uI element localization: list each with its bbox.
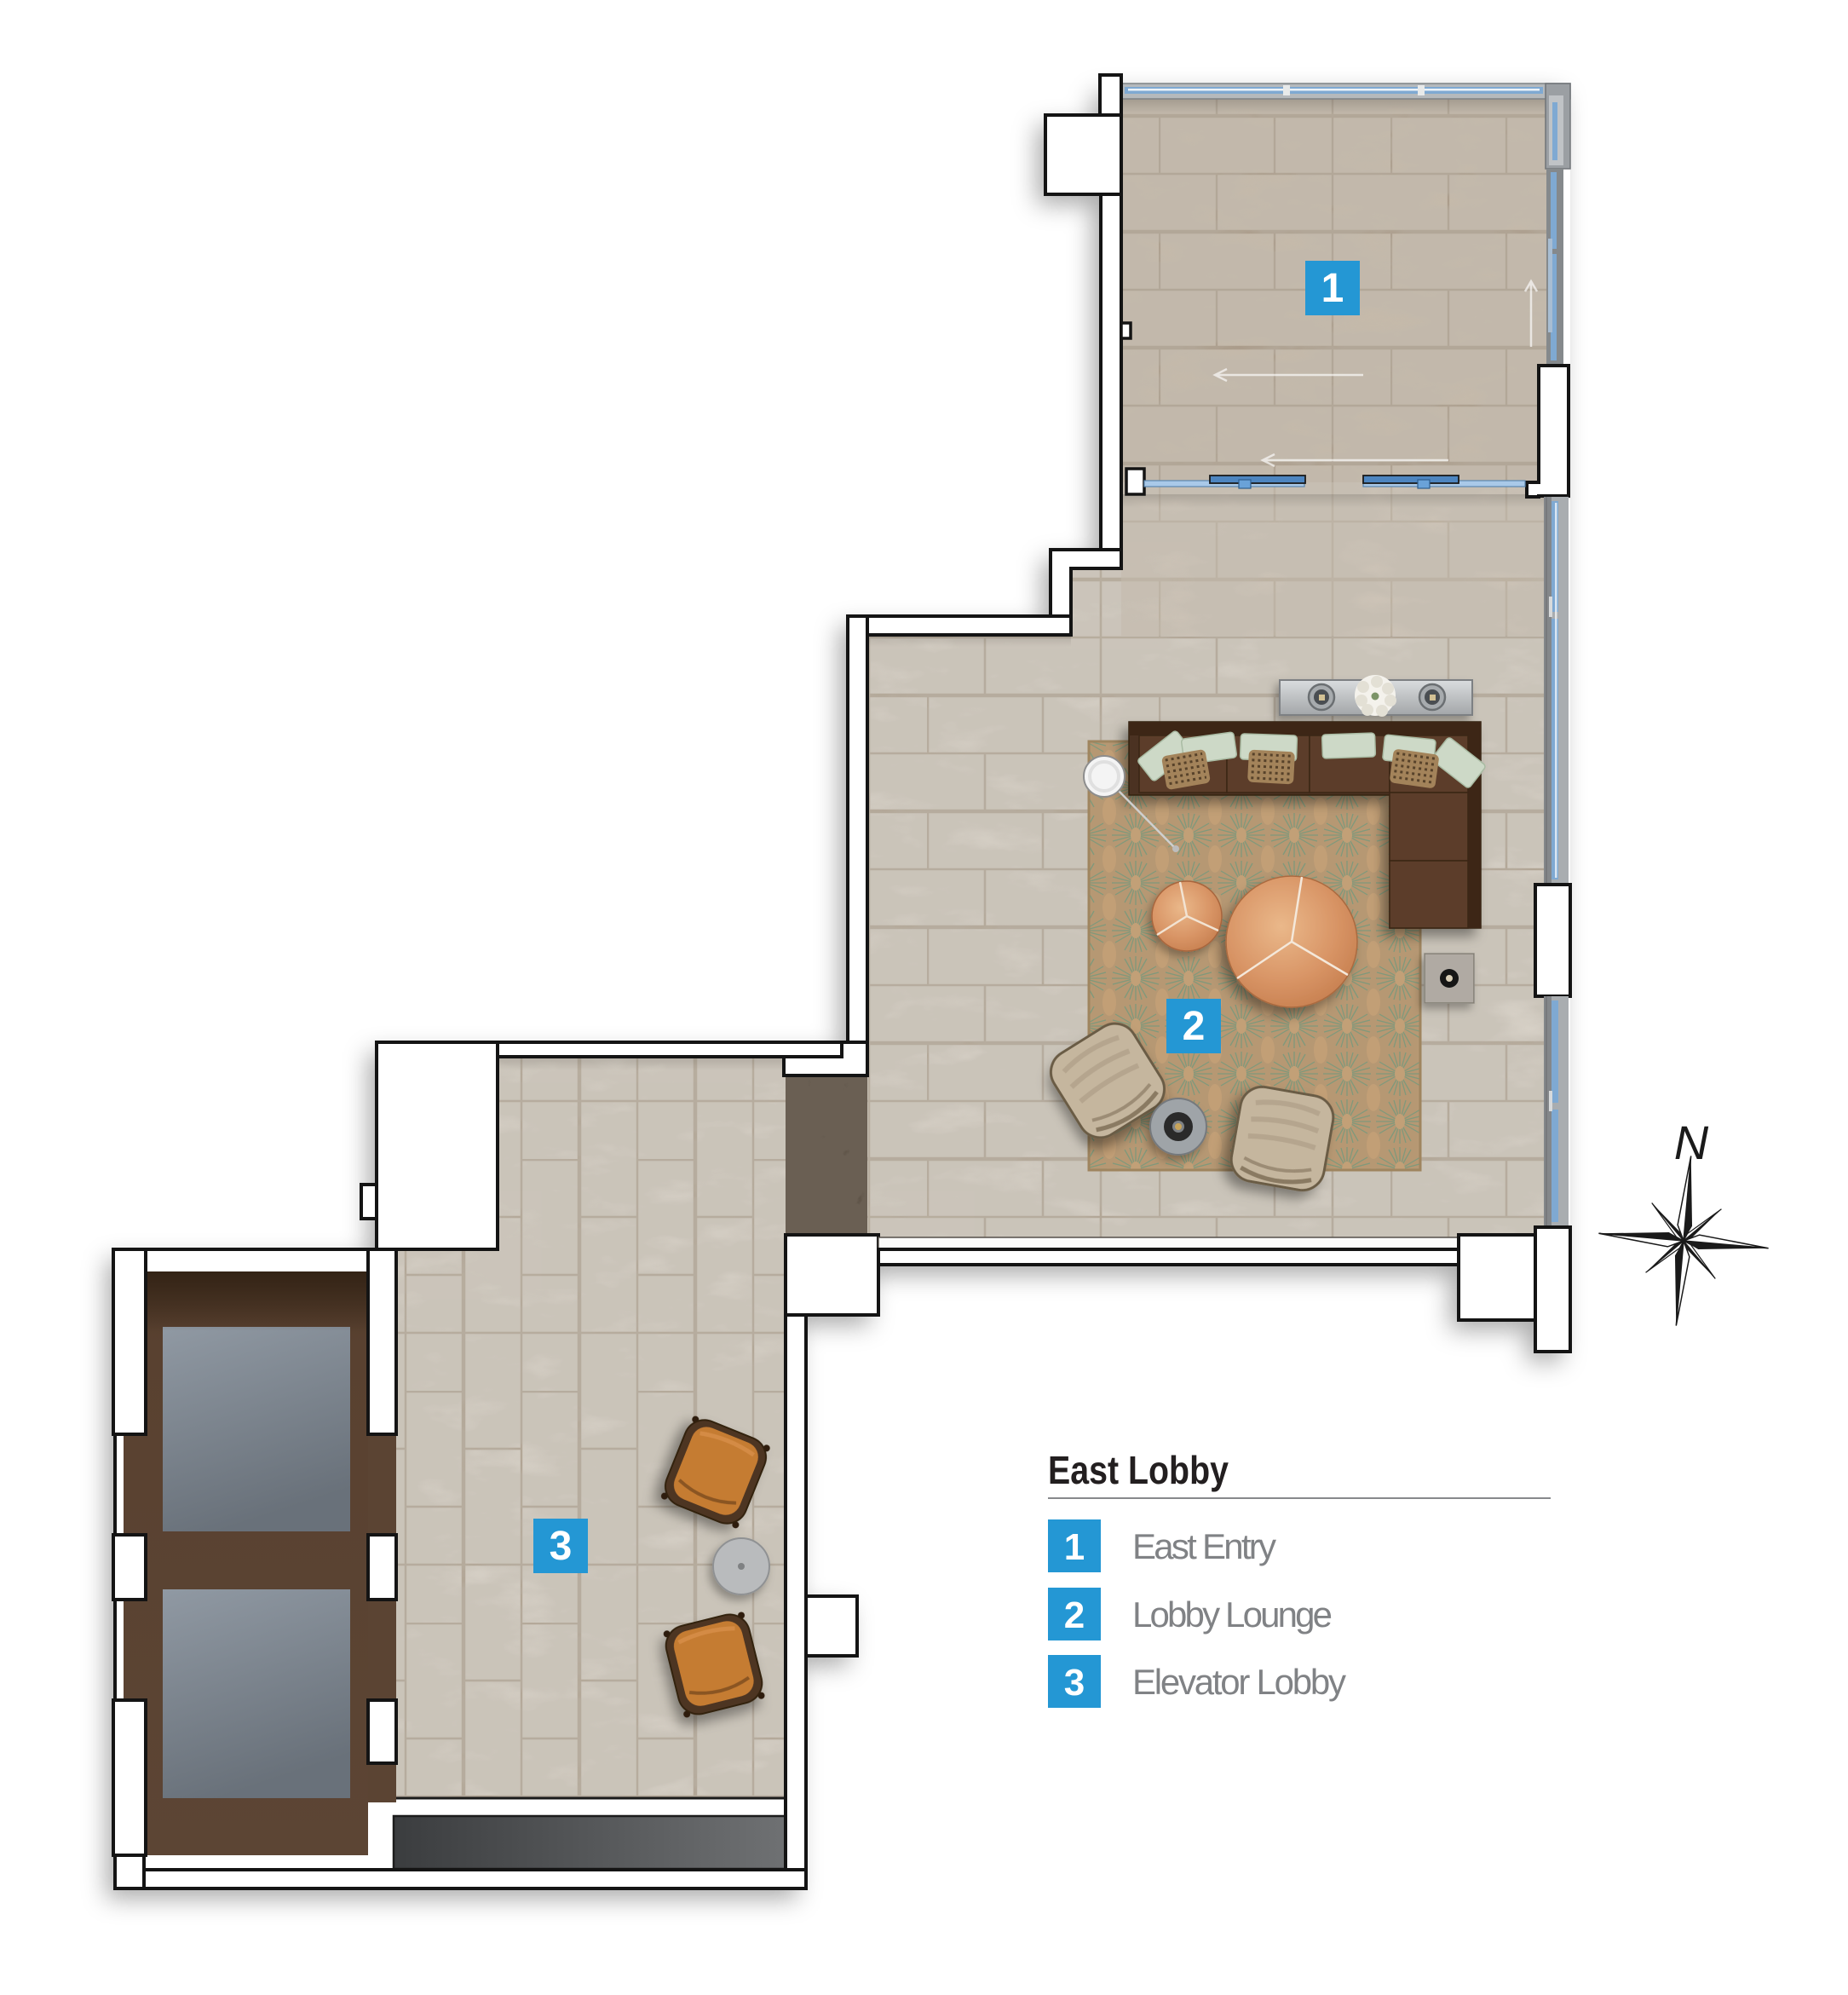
svg-text:N: N (1674, 1116, 1709, 1169)
svg-text:East Entry: East Entry (1132, 1526, 1276, 1566)
svg-text:Elevator Lobby: Elevator Lobby (1132, 1662, 1346, 1702)
svg-text:Lobby Lounge: Lobby Lounge (1132, 1594, 1333, 1635)
svg-text:2: 2 (1183, 1004, 1206, 1049)
svg-text:3: 3 (1064, 1662, 1085, 1704)
svg-text:1: 1 (1321, 266, 1344, 311)
svg-text:East Lobby: East Lobby (1048, 1448, 1229, 1492)
svg-text:1: 1 (1064, 1526, 1085, 1568)
svg-text:3: 3 (550, 1524, 573, 1569)
svg-text:2: 2 (1064, 1594, 1085, 1636)
